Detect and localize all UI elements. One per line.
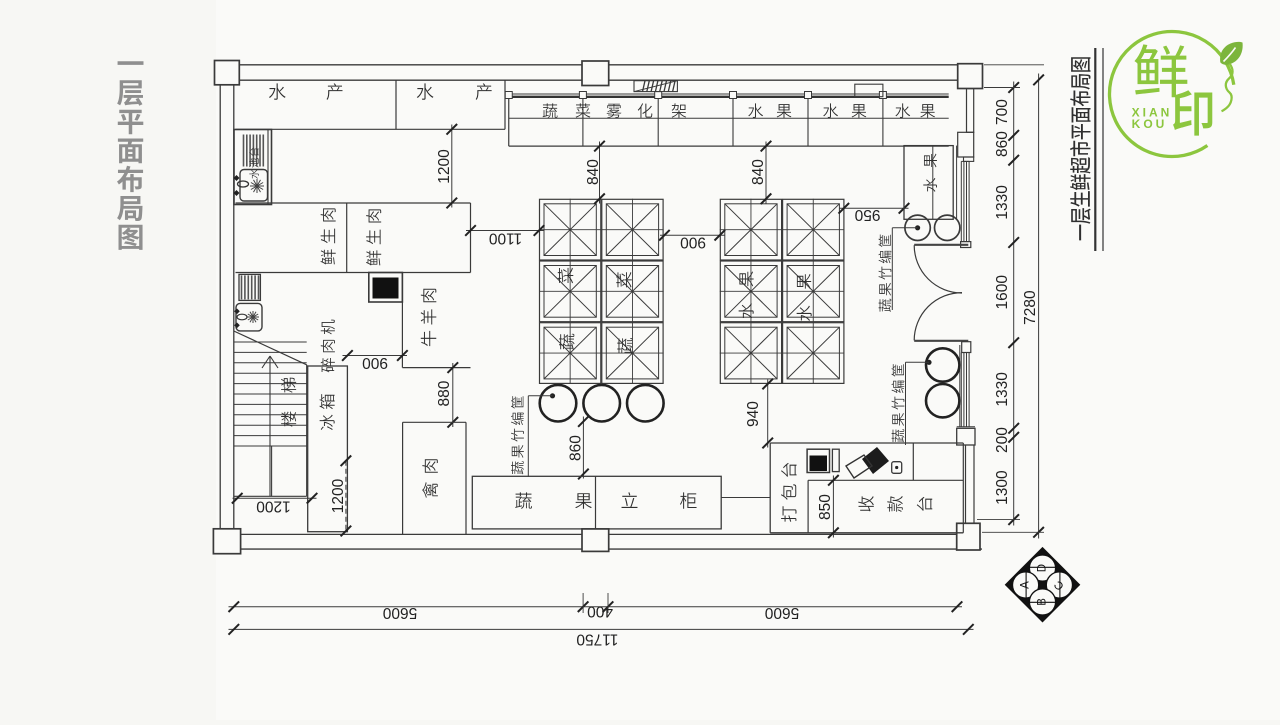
svg-text:1200: 1200 [436, 149, 453, 184]
svg-text:5600: 5600 [764, 604, 799, 621]
svg-text:A: A [1020, 581, 1032, 589]
svg-text:860: 860 [994, 131, 1011, 157]
svg-text:880: 880 [436, 380, 453, 406]
svg-text:900: 900 [362, 354, 388, 371]
svg-text:200: 200 [994, 427, 1011, 453]
svg-text:840: 840 [585, 159, 602, 185]
svg-text:5600: 5600 [382, 604, 417, 621]
svg-text:1330: 1330 [994, 372, 1011, 407]
svg-text:B: B [1037, 598, 1049, 606]
svg-text:850: 850 [817, 494, 834, 520]
svg-text:950: 950 [854, 206, 880, 223]
svg-text:1330: 1330 [994, 185, 1011, 220]
svg-text:1100: 1100 [488, 230, 522, 247]
svg-text:900: 900 [680, 234, 706, 251]
svg-text:940: 940 [745, 401, 762, 427]
svg-text:1200: 1200 [256, 498, 291, 515]
svg-text:1200: 1200 [330, 478, 347, 513]
svg-text:840: 840 [750, 159, 767, 185]
svg-text:860: 860 [568, 435, 585, 461]
svg-text:1300: 1300 [994, 470, 1011, 505]
svg-text:7280: 7280 [1022, 290, 1039, 325]
svg-text:1600: 1600 [994, 275, 1011, 310]
svg-text:700: 700 [994, 99, 1011, 125]
svg-text:400: 400 [587, 603, 613, 620]
svg-text:11750: 11750 [576, 631, 618, 648]
svg-text:D: D [1037, 564, 1049, 572]
svg-text:KOU: KOU [1132, 117, 1168, 131]
